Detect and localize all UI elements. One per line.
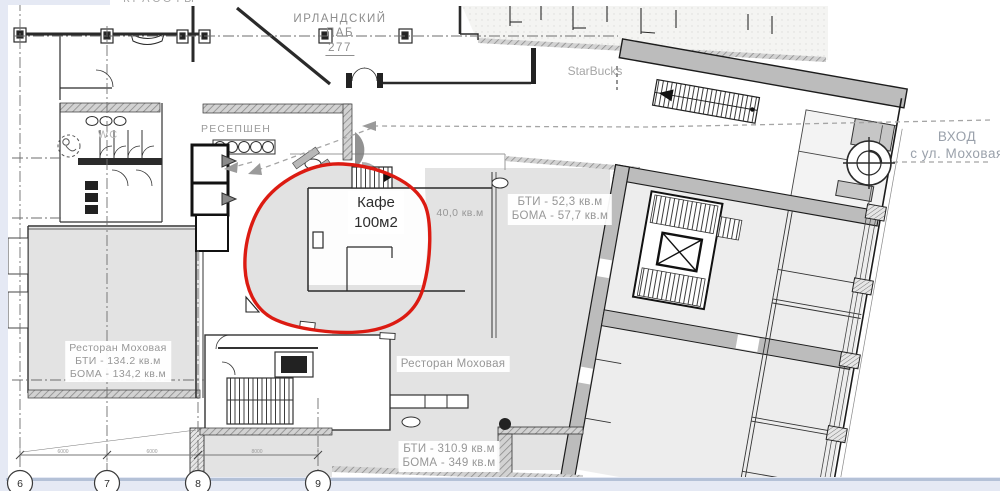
grid-bubble-8: 8 xyxy=(195,478,201,490)
dim-6000-b: 6000 xyxy=(146,449,157,455)
restaurant-center-name-label: Ресторан Моховая xyxy=(397,356,510,372)
restaurant-left-name: Ресторан Моховая xyxy=(69,342,167,355)
cafe-label: Кафе 100м2 xyxy=(348,191,404,234)
reception-label: РЕСЕПШЕН xyxy=(201,123,271,136)
beauty-salon-label: КРАСОТЫ xyxy=(123,0,197,7)
unit-52-label: БТИ - 52,3 кв.м БОМА - 57,7 кв.м xyxy=(508,194,612,225)
irish-pub-line1: ИРЛАНДСКИЙ xyxy=(293,12,386,26)
cafe-area-size: 100м2 xyxy=(354,213,398,233)
unit-52-bti: БТИ - 52,3 кв.м xyxy=(512,195,608,209)
area-40-label: 40,0 кв.м xyxy=(436,207,483,220)
entrance-line1: ВХОД xyxy=(910,129,1000,146)
irish-pub-label: ИРЛАНДСКИЙ ПАБ 277 xyxy=(293,12,386,56)
irish-pub-line2: ПАБ xyxy=(293,26,386,40)
restaurant-center-boma: БОМА - 349 кв.м xyxy=(403,456,496,470)
irish-pub-number: 277 xyxy=(325,41,355,56)
restaurant-center-area-label: БТИ - 310.9 кв.м БОМА - 349 кв.м xyxy=(399,441,500,472)
restaurant-left-boma: БОМА - 134,2 кв.м xyxy=(69,368,167,381)
entrance-label: ВХОД с ул. Моховая xyxy=(910,129,1000,163)
unit-52-boma: БОМА - 57,7 кв.м xyxy=(512,209,608,223)
restaurant-left-bti: БТИ - 134.2 кв.м xyxy=(69,355,167,368)
entrance-line2: с ул. Моховая xyxy=(910,146,1000,163)
grid-bubble-6: 6 xyxy=(17,478,23,490)
restaurant-left-label: Ресторан Моховая БТИ - 134.2 кв.м БОМА -… xyxy=(65,341,171,382)
restaurant-center-bti: БТИ - 310.9 кв.м xyxy=(403,442,496,456)
starbucks-label: StarBucks xyxy=(568,64,623,79)
grid-bubble-9: 9 xyxy=(315,478,321,490)
dim-8000: 8000 xyxy=(251,449,262,455)
floor-plan-page: 6 7 8 9 КРАСОТЫ ИРЛАНДСКИЙ ПАБ 277 StarB… xyxy=(0,0,1000,491)
wc-label: WC xyxy=(98,129,118,143)
cafe-name: Кафе xyxy=(354,193,398,213)
dim-6000-a: 6000 xyxy=(57,449,68,455)
floor-plan-drawing: 6 7 8 9 xyxy=(0,0,1000,491)
grid-bubble-7: 7 xyxy=(104,478,110,490)
